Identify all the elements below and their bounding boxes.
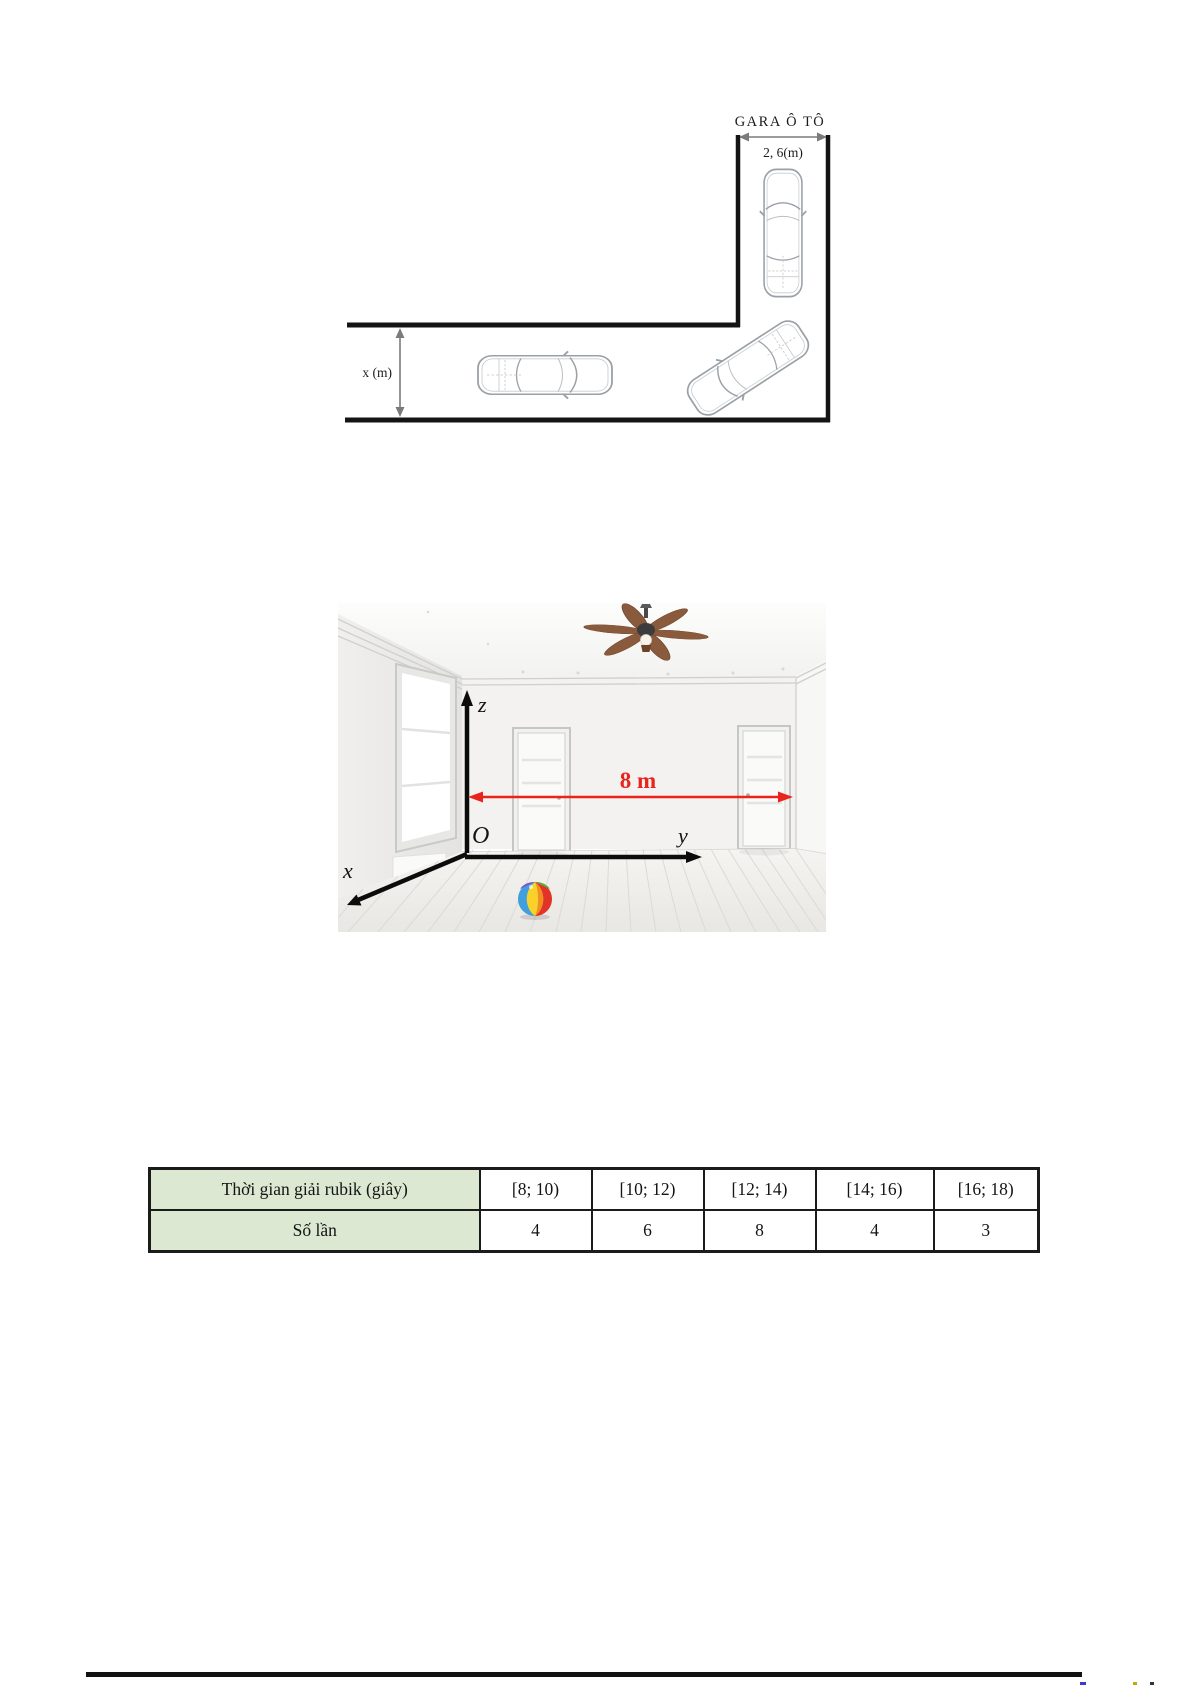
frequency-table: Thời gian giải rubik (giây) [8; 10) [10;… [148,1167,1040,1253]
garage-width-arrow-icon [739,133,827,142]
garage-title: GARA Ô TÔ [735,113,826,130]
road-width-label: x (m) [362,365,392,380]
door-right [738,726,790,849]
time-cell: [8; 10) [480,1169,592,1211]
window [396,664,456,852]
door-left [513,728,570,852]
count-cell: 6 [592,1210,704,1252]
table-row-count: Số lần 4 6 8 4 3 [150,1210,1039,1252]
y-axis-label: y [676,823,688,848]
garage-width-label: 2, 6(m) [763,145,803,160]
row-header-time: Thời gian giải rubik (giây) [150,1169,480,1211]
count-cell: 8 [704,1210,816,1252]
car-in-garage-icon [760,169,806,296]
time-cell: [14; 16) [816,1169,934,1211]
room-figure: z O y x 8 m [338,602,826,932]
right-wall [796,660,826,854]
footer-divider [86,1672,1082,1677]
origin-label: O [472,823,489,849]
door-shadow [739,849,789,856]
count-cell: 3 [934,1210,1039,1252]
car-on-road-icon [478,351,612,398]
road-width-arrow-icon [396,328,405,417]
table-row-time: Thời gian giải rubik (giây) [8; 10) [10;… [150,1169,1039,1211]
document-page: GARA Ô TÔ 2, 6(m) x (m) [0,0,1192,1685]
x-axis-label: x [342,858,353,883]
count-cell: 4 [480,1210,592,1252]
time-cell: [16; 18) [934,1169,1039,1211]
garage-diagram: GARA Ô TÔ 2, 6(m) x (m) [330,95,840,440]
count-cell: 4 [816,1210,934,1252]
car-turning-icon [680,312,815,424]
room-width-label: 8 m [620,768,656,793]
row-header-count: Số lần [150,1210,480,1252]
time-cell: [12; 14) [704,1169,816,1211]
time-cell: [10; 12) [592,1169,704,1211]
z-axis-label: z [477,692,487,717]
